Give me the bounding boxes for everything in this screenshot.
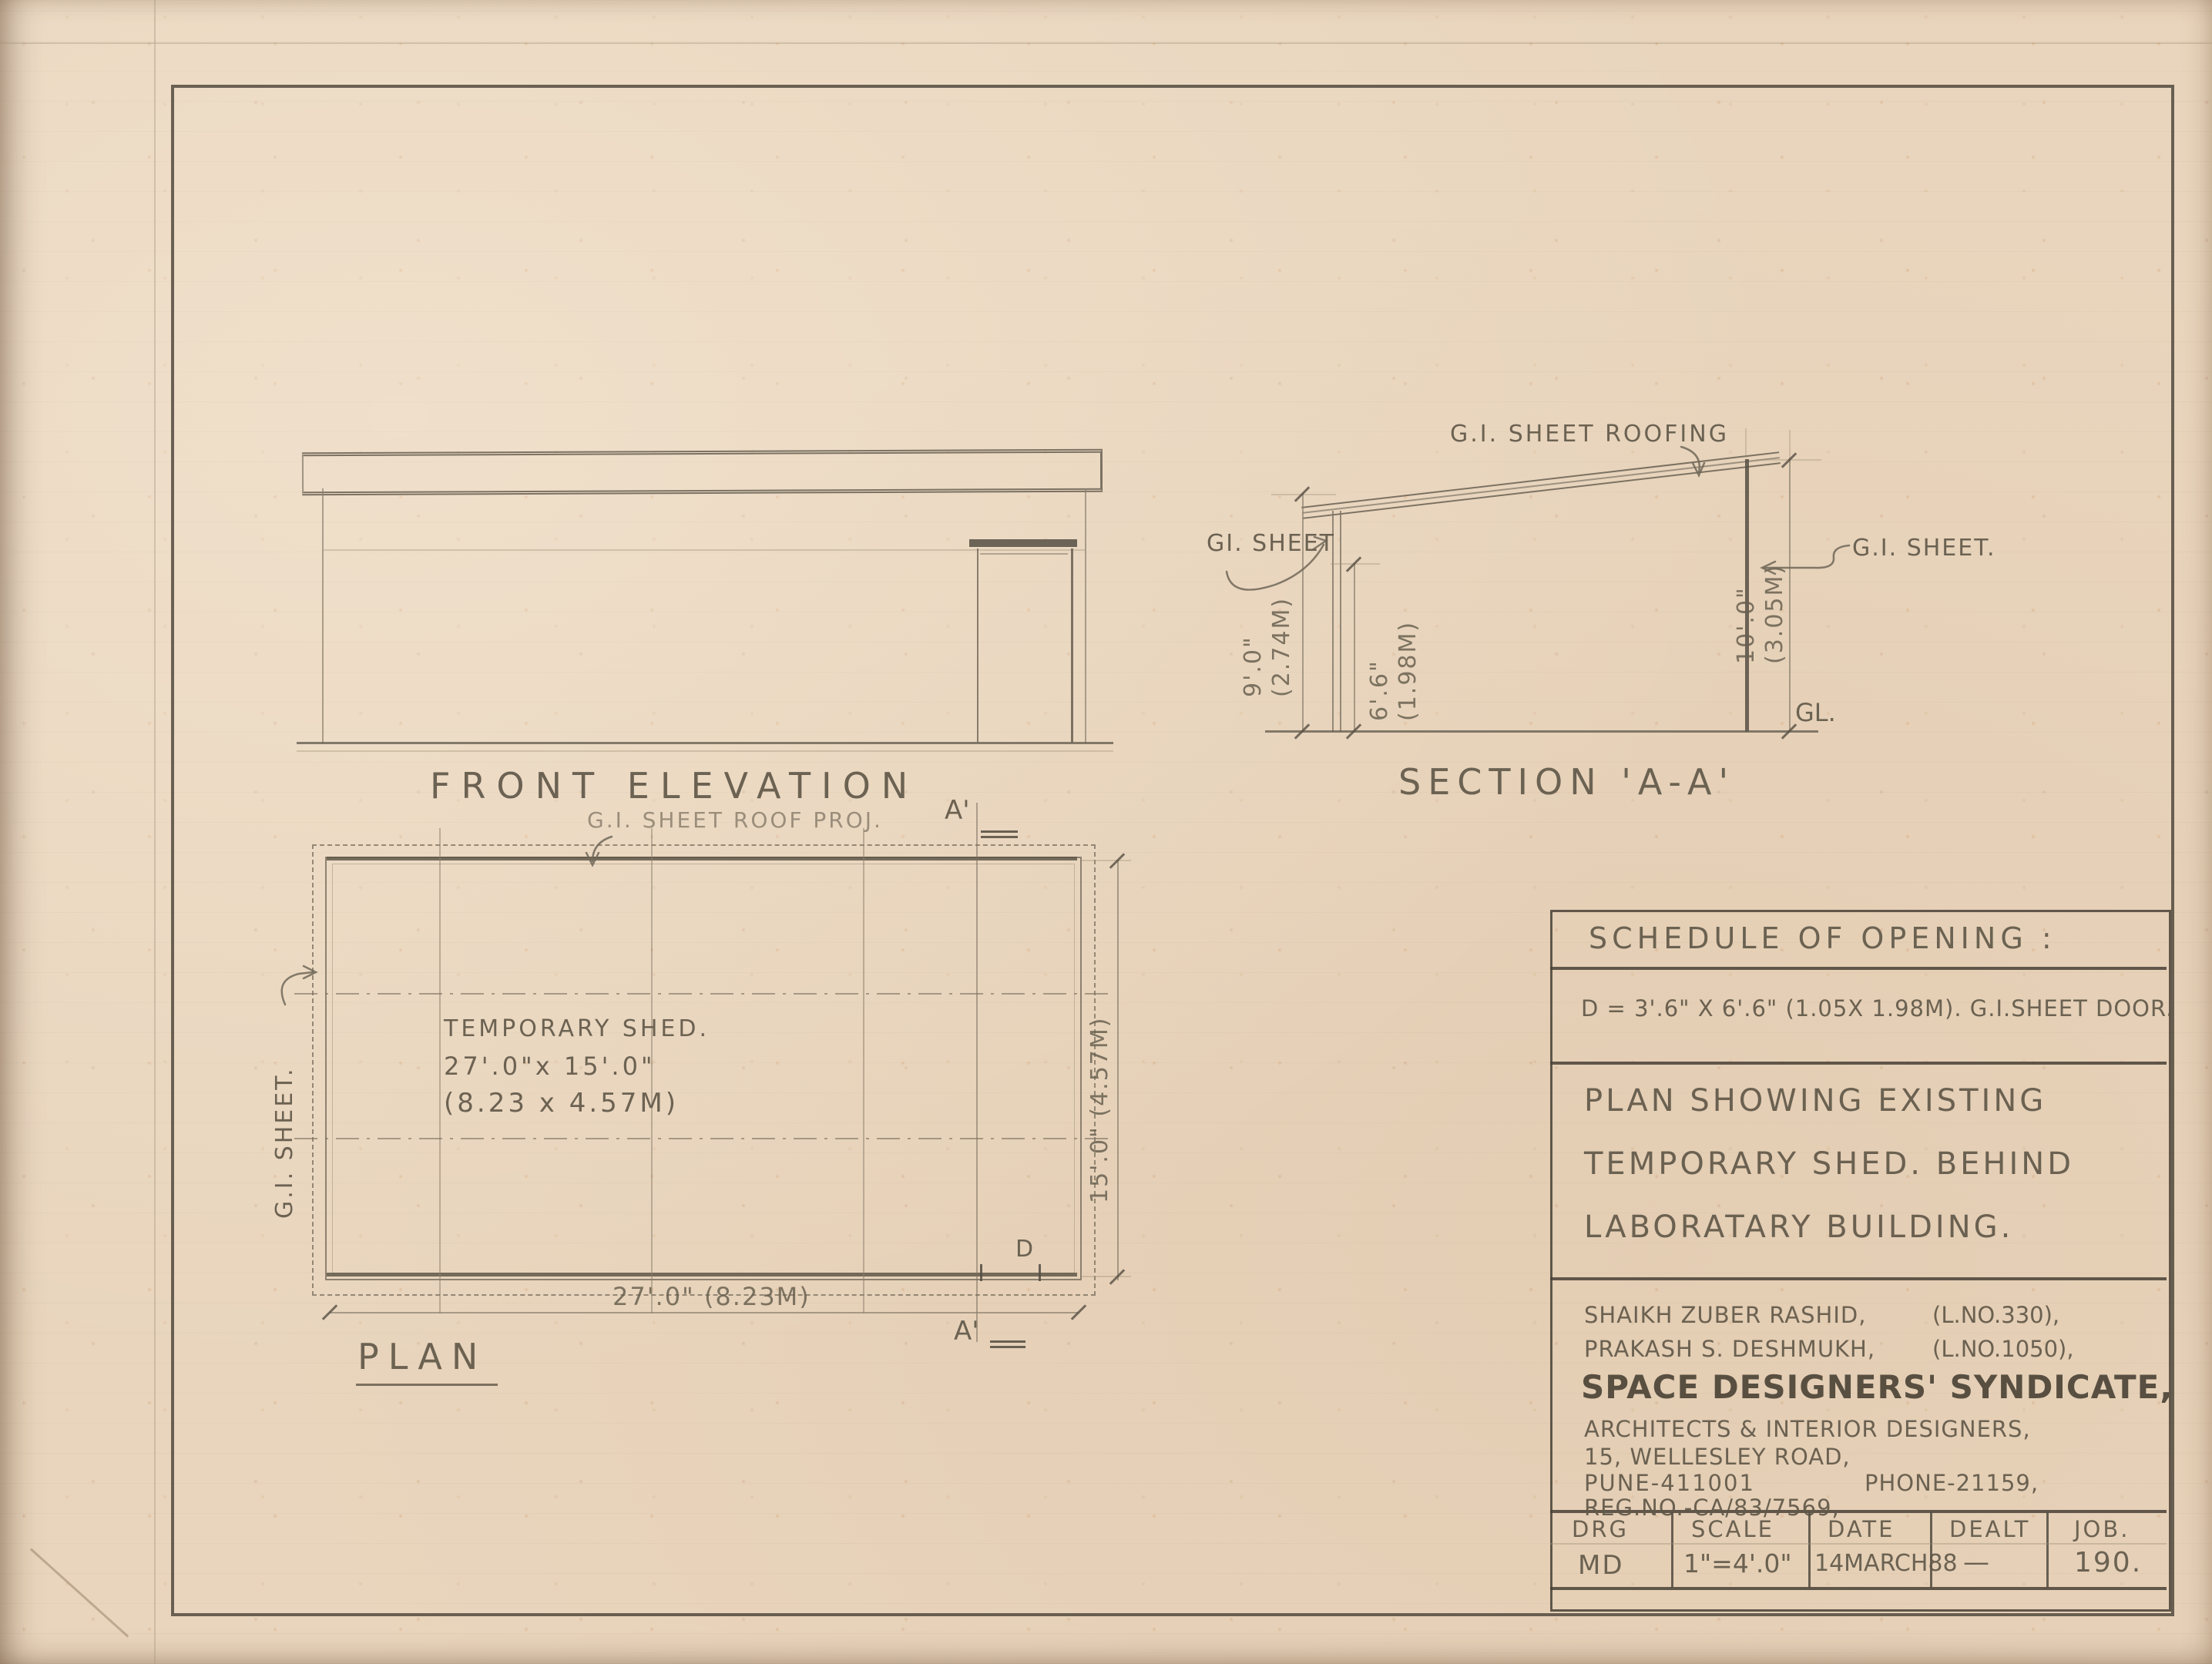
blueprint-sheet: FRONT ELEVATION 9'.0" (2.74M) 6'.6" (1.9… [0,0,2212,1664]
right-wall-arrow [1764,545,1849,568]
left-wall-arrowhead [1312,537,1326,550]
left-wall-arrow [1227,545,1324,590]
roofing-arrow [1681,447,1700,472]
leader-arrows-layer [0,0,2212,1664]
